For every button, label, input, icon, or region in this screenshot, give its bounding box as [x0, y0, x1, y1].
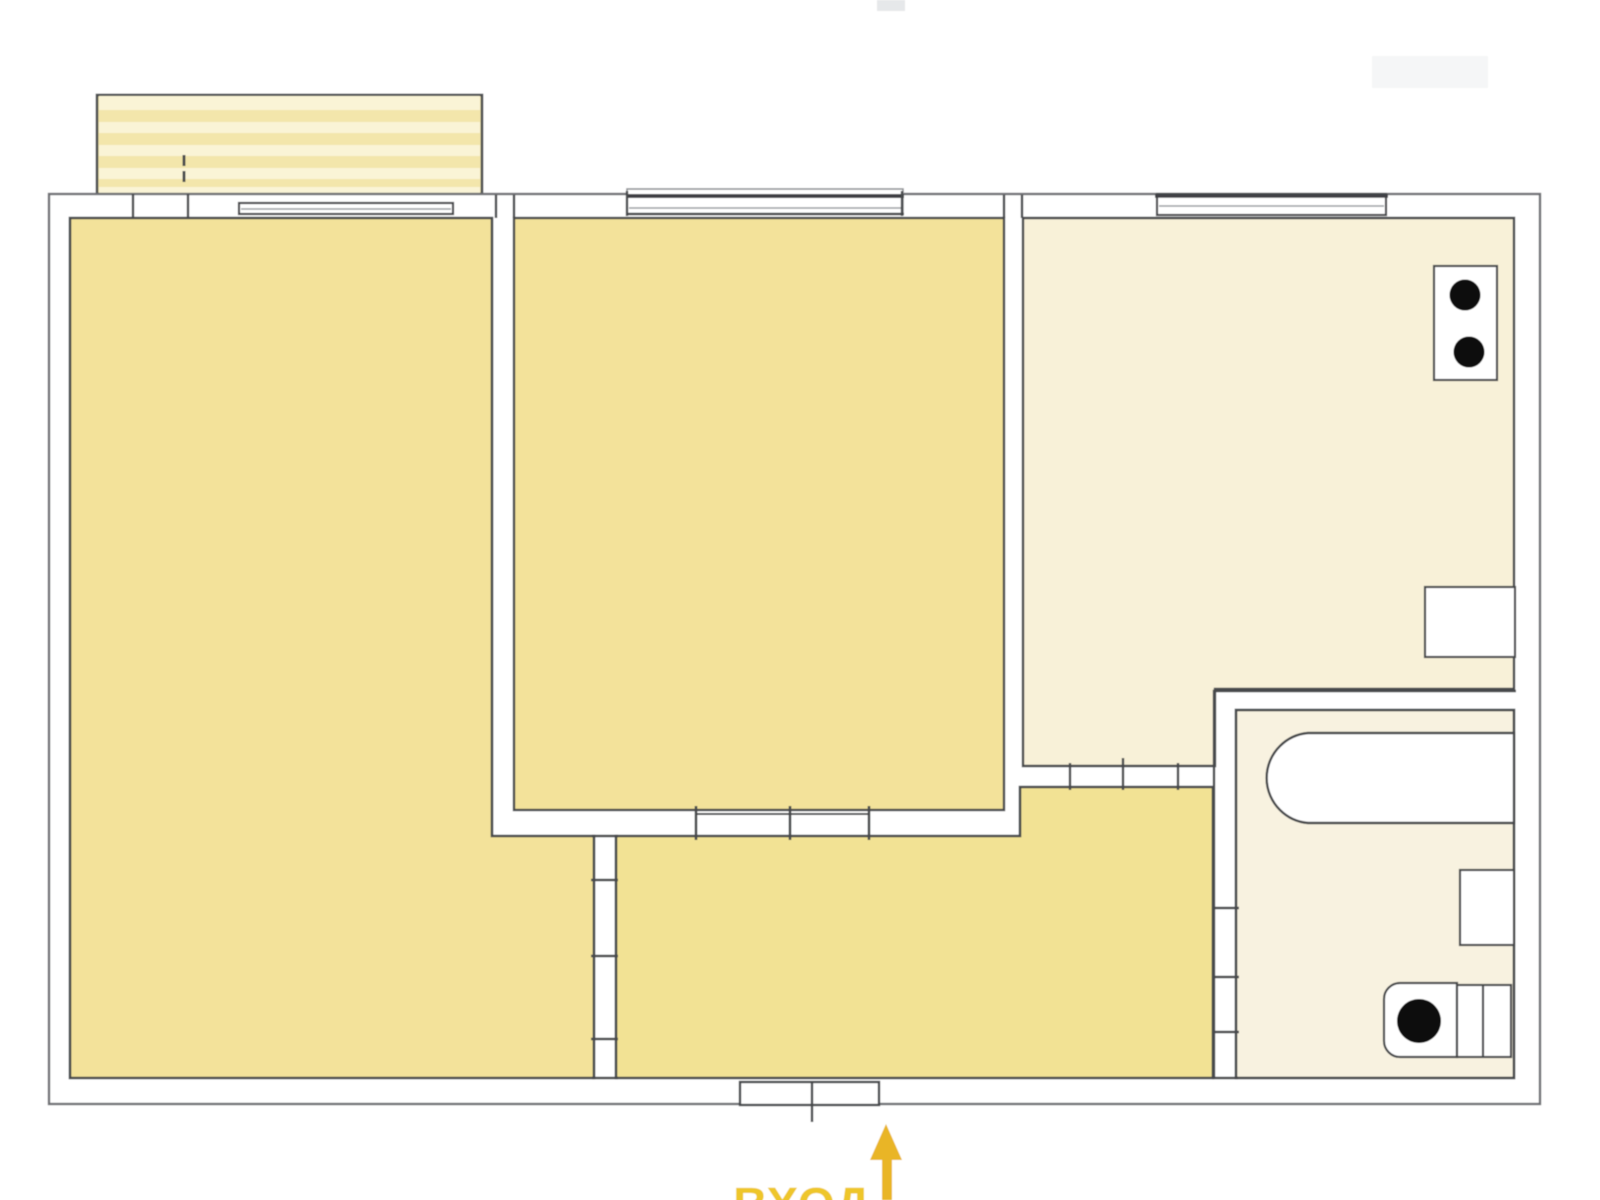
svg-text:ВХОД: ВХОД: [733, 1179, 870, 1200]
